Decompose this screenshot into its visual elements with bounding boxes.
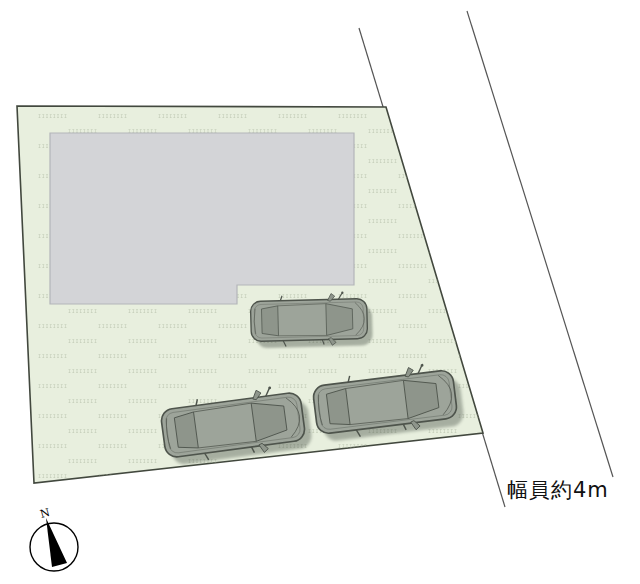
compass-north-label: N xyxy=(39,506,52,521)
watermark-text: IIIIIIII xyxy=(248,368,278,374)
watermark-text: IIIIIIII xyxy=(428,308,458,314)
watermark-text: IIIIIIII xyxy=(68,398,98,404)
watermark-text: IIIIIIII xyxy=(218,353,248,359)
road-edge-line-right xyxy=(467,11,613,477)
site-plan-svg: IIIIIIIIIIIIIIIIIIIIIIIIIIIIIIIIIIIIIIII… xyxy=(0,0,640,584)
watermark-text: IIIIIIII xyxy=(68,338,98,344)
watermark-text: IIIIIIII xyxy=(458,353,488,359)
watermark-text: IIIIIIII xyxy=(428,278,458,284)
watermark-text: IIIIIIII xyxy=(128,398,158,404)
watermark-text: IIIIIIII xyxy=(218,113,248,119)
watermark-text: IIIIIIII xyxy=(278,473,308,479)
watermark-text: IIIIIIII xyxy=(38,473,68,479)
watermark-text: IIIIIIII xyxy=(368,278,398,284)
watermark-text: IIIIIIII xyxy=(188,338,218,344)
watermark-text: IIIIIIII xyxy=(158,353,188,359)
watermark-text: IIIIIIII xyxy=(398,353,428,359)
watermark-text: IIIIIIII xyxy=(458,263,488,269)
road-width-label: 幅員約4m xyxy=(507,478,609,502)
watermark-text: IIIIIIII xyxy=(428,338,458,344)
watermark-text: IIIIIIII xyxy=(368,248,398,254)
watermark-text: IIIIIIII xyxy=(338,473,368,479)
watermark-text: IIIIIIII xyxy=(398,143,428,149)
watermark-text: IIIIIIII xyxy=(38,383,68,389)
watermark-text: IIIIIIII xyxy=(68,458,98,464)
watermark-text: IIIIIIII xyxy=(428,128,458,134)
watermark-text: IIIIIIII xyxy=(398,173,428,179)
watermark-text: IIIIIIII xyxy=(338,113,368,119)
watermark-text: IIIIIIII xyxy=(278,383,308,389)
building-footprint xyxy=(50,133,354,304)
watermark-text: IIIIIIII xyxy=(428,248,458,254)
watermark-text: IIIIIIII xyxy=(38,413,68,419)
watermark-text: IIIIIIII xyxy=(218,473,248,479)
watermark-text: IIIIIIII xyxy=(128,368,158,374)
watermark-text: IIIIIIII xyxy=(368,158,398,164)
watermark-text: IIIIIIII xyxy=(458,293,488,299)
watermark-text: IIIIIIII xyxy=(128,338,158,344)
watermark-text: IIIIIIII xyxy=(398,293,428,299)
watermark-text: IIIIIIII xyxy=(188,368,218,374)
watermark-text: IIIIIIII xyxy=(428,158,458,164)
watermark-text: IIIIIIII xyxy=(428,218,458,224)
watermark-text: IIIIIIII xyxy=(458,443,488,449)
watermark-text: IIIIIIII xyxy=(218,383,248,389)
watermark-text: IIIIIIII xyxy=(308,368,338,374)
watermark-text: IIIIIIII xyxy=(158,473,188,479)
watermark-text: IIIIIIII xyxy=(338,353,368,359)
watermark-text: IIIIIIII xyxy=(458,203,488,209)
watermark-text: IIIIIIII xyxy=(398,113,428,119)
watermark-text: IIIIIIII xyxy=(368,308,398,314)
watermark-text: IIIIIIII xyxy=(38,113,68,119)
watermark-text: IIIIIIII xyxy=(368,188,398,194)
watermark-text: IIIIIIII xyxy=(68,428,98,434)
watermark-text: IIIIIIII xyxy=(458,323,488,329)
watermark-text: IIIIIIII xyxy=(38,353,68,359)
watermark-text: IIIIIIII xyxy=(68,308,98,314)
watermark-text: IIIIIIII xyxy=(398,233,428,239)
watermark-text: IIIIIIII xyxy=(278,113,308,119)
watermark-text: IIIIIIII xyxy=(278,353,308,359)
watermark-text: IIIIIIII xyxy=(158,113,188,119)
watermark-text: IIIIIIII xyxy=(98,113,128,119)
watermark-text: IIIIIIII xyxy=(398,263,428,269)
site-plan-page: IIIIIIIIIIIIIIIIIIIIIIIIIIIIIIIIIIIIIIII… xyxy=(0,0,640,584)
watermark-text: IIIIIIII xyxy=(458,143,488,149)
watermark-text: IIIIIIII xyxy=(458,173,488,179)
watermark-text: IIIIIIII xyxy=(38,443,68,449)
watermark-text: IIIIIIII xyxy=(98,443,128,449)
watermark-text: IIIIIIII xyxy=(458,233,488,239)
watermark-text: IIIIIIII xyxy=(368,458,398,464)
watermark-text: IIIIIIII xyxy=(38,323,68,329)
watermark-text: IIIIIIII xyxy=(368,338,398,344)
watermark-text: IIIIIIII xyxy=(128,428,158,434)
watermark-text: IIIIIIII xyxy=(368,368,398,374)
watermark-text: IIIIIIII xyxy=(218,323,248,329)
watermark-text: IIIIIIII xyxy=(398,473,428,479)
watermark-text: IIIIIIII xyxy=(398,203,428,209)
watermark-text: IIIIIIII xyxy=(128,458,158,464)
watermark-text: IIIIIIII xyxy=(398,443,428,449)
watermark-text: IIIIIIII xyxy=(98,383,128,389)
watermark-text: IIIIIIII xyxy=(368,218,398,224)
watermark-text: IIIIIIII xyxy=(158,383,188,389)
watermark-text: IIIIIIII xyxy=(398,323,428,329)
watermark-text: IIIIIIII xyxy=(428,428,458,434)
watermark-text: IIIIIIII xyxy=(458,383,488,389)
watermark-text: IIIIIIII xyxy=(98,413,128,419)
watermark-text: IIIIIIII xyxy=(98,323,128,329)
watermark-text: IIIIIIII xyxy=(128,308,158,314)
watermark-text: IIIIIIII xyxy=(308,458,338,464)
watermark-text: IIIIIIII xyxy=(428,188,458,194)
watermark-text: IIIIIIII xyxy=(68,368,98,374)
watermark-text: IIIIIIII xyxy=(98,353,128,359)
watermark-text: IIIIIIII xyxy=(428,458,458,464)
watermark-text: IIIIIIII xyxy=(188,308,218,314)
watermark-text: IIIIIIII xyxy=(158,323,188,329)
watermark-text: IIIIIIII xyxy=(458,473,488,479)
compass: N xyxy=(30,506,78,571)
watermark-text: IIIIIIII xyxy=(458,113,488,119)
